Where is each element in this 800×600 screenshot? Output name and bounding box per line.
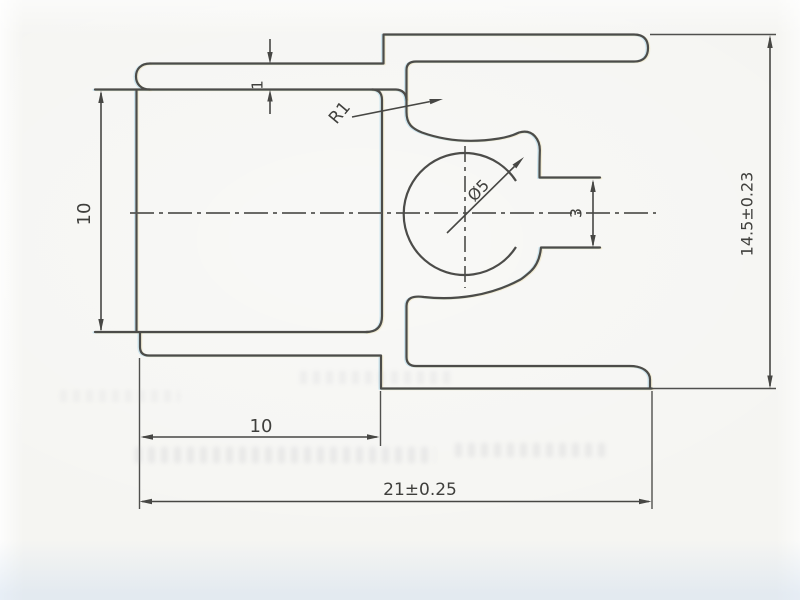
dim-bead-diameter-label: Ø5	[464, 176, 493, 206]
dim-corner-radius-leader	[352, 99, 443, 117]
technical-drawing: 1 R1 10 Ø5 3 14.5±0.23 10 21±0.25	[0, 0, 800, 600]
bead-circle	[404, 153, 516, 275]
dim-flange-thickness-arrows	[267, 39, 272, 114]
scanned-drawing-sheet: 1 R1 10 Ø5 3 14.5±0.23 10 21±0.25	[0, 0, 800, 600]
dim-left-height-label: 10	[74, 203, 95, 226]
dim-bottom-flange-width-label: 10	[250, 416, 273, 437]
dim-corner-radius-label: R1	[325, 98, 355, 128]
dim-overall-width-label: 21±0.25	[383, 480, 457, 500]
dim-flange-thickness-label: 1	[249, 80, 267, 90]
dim-overall-height-label: 14.5±0.23	[738, 172, 757, 257]
extension-lines	[140, 35, 777, 510]
dim-slot-height-label: 3	[567, 208, 586, 218]
dim-left-height-line	[98, 91, 103, 332]
dimension-lines	[98, 35, 772, 504]
dim-overall-height-line	[767, 35, 772, 389]
